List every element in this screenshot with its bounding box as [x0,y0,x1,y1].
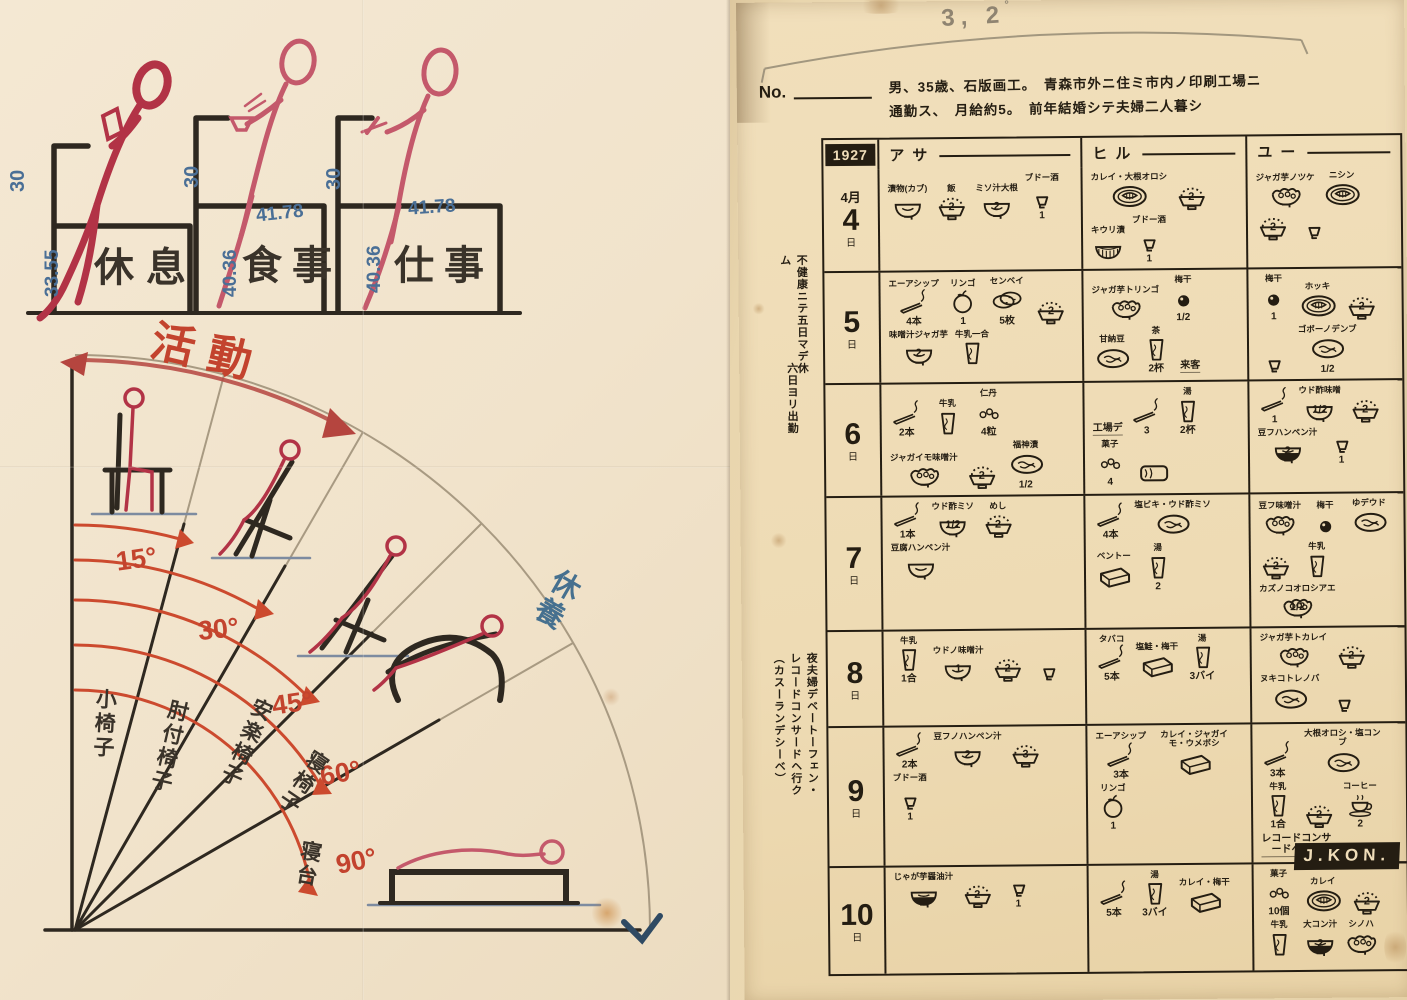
meal-table-row: 7 日 1本 ウド酢ミソ 1/2 めし 2 豆腐ハンペン汁 4本 塩ビキ・ウド酢… [826,491,1404,630]
sake-icon [1324,428,1358,456]
meal-cell-evening: 豆フ味噌汁 梅干 ゆデウド 2 牛乳 カズノコオロシアエ 1/2 [1248,493,1404,626]
cup-icon [892,647,926,675]
paper-crease [0,466,730,468]
food-item: タバコ 5本 [1095,635,1129,684]
food-quantity: 2 [974,890,980,901]
cup-icon [1300,552,1334,580]
plum-icon [1256,284,1290,312]
sake-icon [893,784,927,812]
food-quantity: 1/2 [1176,313,1190,323]
food-quantity: 2 [948,202,954,213]
food-quantity: 5本 [1104,673,1120,683]
food-label: 豆フハンペン汁 [1258,428,1318,438]
meal-cell-morning: 牛乳 1合 ウドノ味噌汁 1 2 [882,630,1086,726]
food-label: キウリ漬 [1091,226,1125,236]
food-quantity: 2杯 [1180,426,1196,436]
meal-cell-morning: 2本 牛乳 仁丹 4粒 ジャガイモ味噌汁 2 福神漬 1/2 [879,383,1083,495]
food-quantity: 1 [1016,900,1022,910]
food-label: 茶 [1152,326,1161,335]
food-item: 飯 2 [934,184,968,223]
food-item: ニシン [1322,170,1362,211]
food-quantity: 1 [907,812,913,822]
food-quantity: 2 [994,202,1000,213]
food-label: 梅干 [1316,501,1333,510]
food-item [1297,214,1331,242]
food-label: 牛乳 [1308,542,1325,551]
fancybowl-icon [1263,511,1297,539]
food-item: 1 [1257,387,1291,425]
dim-top-3: 41.78 [407,196,456,218]
food-item: 湯 3バイ [1138,870,1172,919]
plate-icon [1303,887,1343,917]
cig-icon [897,289,931,317]
date-day: 7 [845,543,862,573]
food-item: 2 [965,463,999,491]
food-label: ブドー酒 [893,774,927,784]
platefood-icon [1307,335,1347,365]
food-label: 味噌汁ジャガ芋 [889,330,948,340]
meal-cell-evening: 菓子 10個 カレイ 2 牛乳 大コン汁 2 シノハ [1252,863,1407,970]
food-item: 塩ビキ・ウド酢ミソ [1134,500,1211,541]
chair-label-rest: 休息 [94,248,198,288]
meal-cell-morning: じゃが芋醤油汁 2 1 [884,866,1088,974]
angle-45: 45° [270,687,314,719]
food-item: ウド酢ミソ 1/2 [931,502,974,541]
food-quantity: 1 [1146,254,1152,264]
food-label: 工場デ [1093,422,1123,435]
food-quantity: 3本 [1270,769,1286,779]
food-label: ベントー [1097,552,1131,562]
food-item: 湯 2杯 [1170,387,1204,436]
plate-icon [1298,292,1338,322]
candy-icon [1093,450,1127,478]
cup-icon [1138,881,1172,909]
food-item: 菓子 10個 [1262,869,1296,918]
bowl-icon [891,195,925,223]
fancybowl-icon [907,463,941,491]
food-label: カレイ・ジャガイモ・ウメボシ [1153,730,1235,749]
date-day: 8 [846,658,863,688]
food-label: ウド酢ミソ [931,502,974,512]
food-item [1327,686,1361,714]
food-quantity: 4本 [1103,531,1119,541]
food-label: リンゴ [1100,783,1126,793]
meal-cell-evening: 梅干 1 ホッキ 2 ゴボーノデンブ 1/2 [1246,268,1402,380]
food-label: 甘納豆 [1099,335,1125,345]
food-item: ゴボーノデンブ 1/2 [1298,325,1357,376]
cup-icon [1261,792,1295,820]
food-quantity: 5本 [1106,909,1122,919]
food-item: 牛乳一合 [955,330,989,369]
angle-15: 15° [114,543,158,575]
foxing-spot [753,303,765,315]
meal-cell-morning: 漬物(カブ) 飯 2 ミソ汁大根 2 ブドー酒 1 [877,168,1081,270]
food-item: 牛乳 1合 [892,636,926,685]
food-quantity: 3バイ [1190,672,1216,682]
food-quantity: 1 [1271,312,1277,322]
food-item: カレイ [1303,877,1343,918]
sake-icon [1297,214,1331,242]
ergonomics-sketch-page: 休息 食事 仕事 30 33.55 30 40.36 41.78 30 40.3… [0,0,730,1000]
food-quantity: 1 [955,664,961,675]
food-item [1257,347,1291,375]
cig-icon [1104,742,1138,770]
apple-icon [946,289,980,317]
food-item: カズノコオロシアエ 1/2 [1259,583,1336,622]
dim-back-3: 30 [324,168,344,190]
cig-icon [1097,881,1131,909]
date-month: 4月 [841,191,861,204]
food-label: ヌキコトレノバ [1260,674,1320,684]
food-item: 2 [1302,802,1336,830]
date-day: 4 [842,206,859,236]
food-quantity: 1 [1272,415,1278,425]
food-item: 牛乳 [1300,542,1334,581]
food-item: コーヒー 2 [1343,781,1377,830]
food-label: エーアシップ [1095,732,1146,742]
food-label: 福神漬 [1013,440,1039,450]
food-quantity: 2 [1005,664,1011,675]
food-item: 大コン汁 2 [1303,920,1337,959]
sake-icon [1257,347,1291,375]
food-label: ブドー酒 [1132,216,1166,226]
meal-cell-noon: 5本 湯 3バイ カレイ・梅干 [1087,865,1253,972]
food-quantity: 2 [979,471,985,482]
food-item: エーアシップ 4本 [888,279,939,328]
coffee-icon [1343,791,1377,819]
food-item: ブドー酒 1 [1132,216,1166,265]
platefood-icon [1153,510,1193,540]
date-cell: 8 日 [828,632,883,726]
food-label: ウド酢味噌 [1298,386,1341,396]
food-quantity: 5枚 [999,317,1015,327]
food-item: ベントー [1094,552,1134,593]
food-quantity: 2 [1048,306,1054,317]
food-label: 塩鮭・梅干 [1136,642,1179,652]
food-item: ウドノ味噌汁 1 [933,646,984,685]
plate-icon [1109,183,1149,213]
fancybowl-icon [1108,295,1142,323]
food-label: 大根オロシ・塩コンブ [1301,728,1383,747]
food-item: 1 [1001,872,1035,910]
platefood-icon [1270,685,1310,715]
date-suffix: 日 [847,340,857,350]
food-label: 湯 [1150,870,1159,879]
food-item: ジャガ芋トカレイ [1260,633,1328,672]
year-chip: 1927 [825,144,875,166]
angle-30: 30° [197,614,240,645]
food-item: 1 [1324,428,1358,466]
food-label: ウドノ味噌汁 [933,646,984,656]
food-quantity: 2 [1357,820,1363,830]
food-label: 梅干 [1265,274,1282,283]
food-item: リンゴ 1 [946,278,980,327]
food-quantity: 3 [1144,426,1150,436]
fan-frame [45,362,640,930]
date-suffix: 日 [852,933,862,943]
fan-chair-15 [220,441,299,556]
margin-note-back-to-work: 六日ヨリ出勤 [783,362,800,462]
food-quantity: 2 [1317,939,1323,950]
food-label: エーアシップ [888,279,938,289]
foxing-spot [856,0,906,14]
loaf-icon [1134,457,1174,487]
cup-icon [955,340,989,368]
column-morning: アサ [877,138,1080,170]
cup-icon [931,410,965,438]
diary-sheet: 3, 2° No. 男、35歳、石版画工。 青森市外ニ住ミ市内ノ印刷工場ニ 通勤… [736,0,1407,1000]
food-quantity: 2本 [899,428,915,438]
food-label: コーヒー [1343,781,1377,791]
fancybowl-icon [1344,930,1378,958]
date-cell: 6 日 [825,385,880,496]
food-item: 牛乳 [930,399,964,438]
food-quantity: 1 [1110,822,1116,832]
food-quantity: 2 [1362,404,1368,415]
fan-chair-recliner [374,616,502,700]
meal-cell-morning: エーアシップ 4本 リンゴ 1 センベイ 5枚 2 味噌汁ジャガ芋 2 牛乳一合 [878,271,1082,383]
food-item: ミソ汁大根 2 [975,183,1018,222]
food-item: 漬物(カブ) [888,184,928,223]
food-label: 大コン汁 [1303,920,1337,930]
food-label: 飯 [947,184,956,193]
food-item: 1本 [890,503,924,541]
food-item: 仁丹 4粒 [971,389,1005,438]
food-item: 豆腐ハンペン汁 [891,543,951,582]
date-cell: 10 日 [830,868,885,974]
cig-icon [889,400,923,428]
food-item: 2本 [889,400,923,438]
food-item: 豆フ味噌汁 [1258,501,1301,540]
food-label: シノハ [1348,920,1374,930]
date-suffix: 日 [848,453,858,463]
baseline-arrow [624,916,660,940]
food-item: カレイ・ジャガイモ・ウメボシ [1153,730,1235,780]
cig-icon [1257,387,1291,415]
food-item: 豆フノハンペン汁 2 [933,732,1001,771]
date-cell: 4月 4 日 [823,170,878,271]
food-item: 2 [1174,184,1208,212]
sake-icon [1001,872,1035,900]
column-evening: ユー [1245,135,1400,166]
meal-table-row: 8 日 牛乳 1合 ウドノ味噌汁 1 2 タバコ 5本 塩鮭・梅干 湯 3バイ … [827,625,1405,726]
food-label: 牛乳 [1269,782,1286,791]
food-quantity: 3 [1022,750,1028,761]
food-quantity: 2 [995,520,1001,531]
food-quantity: 2 [1188,192,1194,203]
sake-icon [1025,183,1059,211]
food-quantity: 10個 [1268,908,1289,918]
no-label: No. [759,82,787,102]
food-quantity: 2 [1273,561,1279,572]
food-quantity: 2 [964,750,970,761]
food-label: センベイ [990,276,1024,286]
food-quantity: 1/2 [1312,404,1327,415]
platefood-icon [1349,509,1389,539]
bento-icon [1094,562,1134,592]
food-quantity: 1合 [901,675,917,685]
header-rule [1142,153,1235,156]
food-label: 来客 [1180,360,1200,373]
food-item: 2 [1034,298,1068,326]
meal-cell-noon: カレイ・大根オロシ 2 キウリ漬 ブドー酒 1 [1080,166,1246,268]
cup-icon [1139,336,1173,364]
food-label: カレイ [1310,877,1336,887]
date-cell: 7 日 [826,498,881,630]
cig-icon [1093,503,1127,531]
meal-table-row: 6 日 2本 牛乳 仁丹 4粒 ジャガイモ味噌汁 2 福神漬 1/2 工場デ 3 [825,378,1403,496]
food-quantity: 2 [1316,810,1322,821]
dim-front-3: 40.36 [365,245,384,293]
margin-note-concert: 夜夫婦デベートーフェン・レコードコンサードヘ行ク（カスーランデシーベ） [770,652,821,804]
food-item [1134,457,1174,487]
food-item: カレイ・梅干 [1179,878,1230,919]
date-suffix: 日 [846,239,856,249]
food-label: ゴボーノデンブ [1298,325,1357,335]
food-quantity: 1合 [1270,820,1286,830]
food-item: ホッキ [1297,281,1337,322]
food-item: 福神漬 1/2 [1005,440,1045,491]
food-quantity: 1/2 [1019,480,1033,490]
food-quantity: 1本 [900,531,916,541]
food-label: 豆フ味噌汁 [1258,501,1301,511]
food-item: めし 2 [981,502,1015,541]
food-item: 梅干 1 [1256,274,1290,323]
platefood-icon [1006,450,1046,480]
food-label: カレイ・梅干 [1179,878,1230,888]
meal-cell-morning: 1本 ウド酢ミソ 1/2 めし 2 豆腐ハンペン汁 [880,496,1084,630]
food-label: ジャガ芋トカレイ [1260,633,1328,643]
food-item: 大根オロシ・塩コンブ [1301,728,1383,778]
food-item: 豆フハンペン汁 2 [1258,428,1318,467]
food-label: 菓子 [1270,869,1287,878]
food-item: ジャガイモ味噌汁 [890,453,958,492]
food-item: ゆデウド [1349,498,1389,539]
header-rule [1307,151,1390,154]
food-item: ブドー酒 1 [1025,173,1059,222]
fan-bed [380,841,578,903]
food-label: 漬物(カブ) [888,184,928,194]
food-item: 牛乳 [1262,921,1296,960]
meal-cell-evening: 1 ウド酢味噌 1/2 2 豆フハンペン汁 2 1 [1247,380,1403,492]
apple-icon [1096,794,1130,822]
cig-icon [1129,398,1163,426]
food-item: ヌキコトレノバ [1260,674,1320,715]
food-label: ジャガ芋トリンゴ [1091,285,1159,295]
food-item: 3本 [1260,741,1294,779]
food-item: 湯 3バイ [1185,634,1219,683]
food-label: 豆腐ハンペン汁 [891,543,951,553]
fancybowl-icon [1276,643,1310,671]
date-day: 6 [844,420,861,450]
food-quantity: 2杯 [1148,365,1164,375]
dim-back-1: 30 [8,170,28,192]
artist-signature: J.KON. [1294,842,1400,870]
candy-icon [971,399,1005,427]
fan-chair-upright [105,389,170,512]
food-quantity: 2 [1348,651,1354,662]
food-label: カズノコオロシアエ [1259,583,1336,593]
food-label: 仁丹 [980,389,997,398]
food-label: 牛乳 [939,399,956,408]
meal-cell-noon: ジャガ芋トリンゴ 梅干 1/2 甘納豆 茶 2杯 来客 [1081,269,1247,381]
bowl-icon [904,554,938,582]
platefood-icon [1092,345,1132,375]
meal-cell-evening: ジャガ芋ノツケ ニシン 2 [1245,165,1401,267]
food-item: 梅干 1/2 [1166,275,1200,324]
food-item: 2 [1256,214,1290,242]
food-item: 4本 [1093,503,1127,541]
no-blank-rule [794,97,872,100]
bento-icon [1174,750,1214,780]
food-item: 2 [1345,293,1379,321]
sake-icon [1327,686,1361,714]
food-quantity: 3本 [1113,770,1129,780]
food-item: 梅干 [1308,501,1342,540]
cup-icon [1185,644,1219,672]
cig-icon [890,503,924,531]
food-quantity: 1/2 [1290,602,1305,613]
food-item: 工場デ [1093,422,1123,436]
meal-table-row: 10 日 じゃが芋醤油汁 2 1 5本 湯 3バイ カレイ・梅干 菓子 10個 … [830,861,1407,974]
plum-icon [1308,511,1342,539]
pencil-degree-mark: ° [1004,0,1015,11]
platefood-icon [1323,748,1363,778]
meal-cell-evening: ジャガ芋トカレイ 2 ヌキコトレノバ [1249,627,1405,722]
food-item: カレイ・大根オロシ [1091,172,1168,213]
date-day: 5 [843,307,860,337]
food-label: 牛乳 [1271,921,1288,930]
food-label: ブドー酒 [1025,173,1059,183]
food-item: ジャガ芋ノツケ [1256,173,1315,212]
meal-cell-noon: エーアシップ 3本 カレイ・ジャガイモ・ウメボシ リンゴ 1 [1085,725,1251,864]
subject-description: 男、35歳、石版画工。 青森市外ニ住ミ市内ノ印刷工場ニ 通勤ス、 月給約5。 前… [888,66,1404,123]
food-label: 湯 [1198,634,1207,643]
food-item: 牛乳 1合 [1261,782,1295,831]
food-label: リンゴ [950,279,976,289]
meal-cell-morning: 2本 豆フノハンペン汁 2 3 ブドー酒 1 [882,726,1086,866]
bento-icon [1137,653,1177,683]
food-label: 湯 [1183,387,1192,396]
cig-icon [892,733,926,761]
food-label: 梅干 [1174,275,1191,284]
food-item: 茶 2杯 [1139,326,1173,375]
food-item: ブドー酒 1 [893,774,927,823]
food-item: 5本 [1097,881,1131,919]
food-quantity: 2 [1270,223,1276,234]
food-item: 2 [1334,643,1368,671]
fancybowl-icon [1268,183,1302,211]
food-item: 2 [1348,396,1382,424]
food-label: タバコ [1099,635,1125,645]
food-label: ジャガイモ味噌汁 [890,453,958,463]
meal-cell-noon: タバコ 5本 塩鮭・梅干 湯 3バイ [1084,629,1250,724]
food-item [1032,656,1066,684]
bento-icon [1184,888,1224,918]
food-quantity: 2 [1359,301,1365,312]
meal-diary-page: 3, 2° No. 男、35歳、石版画工。 青森市外ニ住ミ市内ノ印刷工場ニ 通勤… [730,0,1407,1000]
food-label: 塩ビキ・ウド酢ミソ [1134,500,1211,510]
date-suffix: 日 [851,809,861,819]
food-label: めし [989,502,1006,511]
date-cell: 9 日 [828,728,883,866]
plum-icon [1166,285,1200,313]
food-item: センベイ 5枚 [987,276,1027,327]
food-item: 塩鮭・梅干 [1136,642,1179,683]
column-noon-label: ヒル [1092,142,1138,163]
food-label: 豆フノハンペン汁 [933,732,1001,742]
food-quantity: 2 [1285,446,1291,457]
